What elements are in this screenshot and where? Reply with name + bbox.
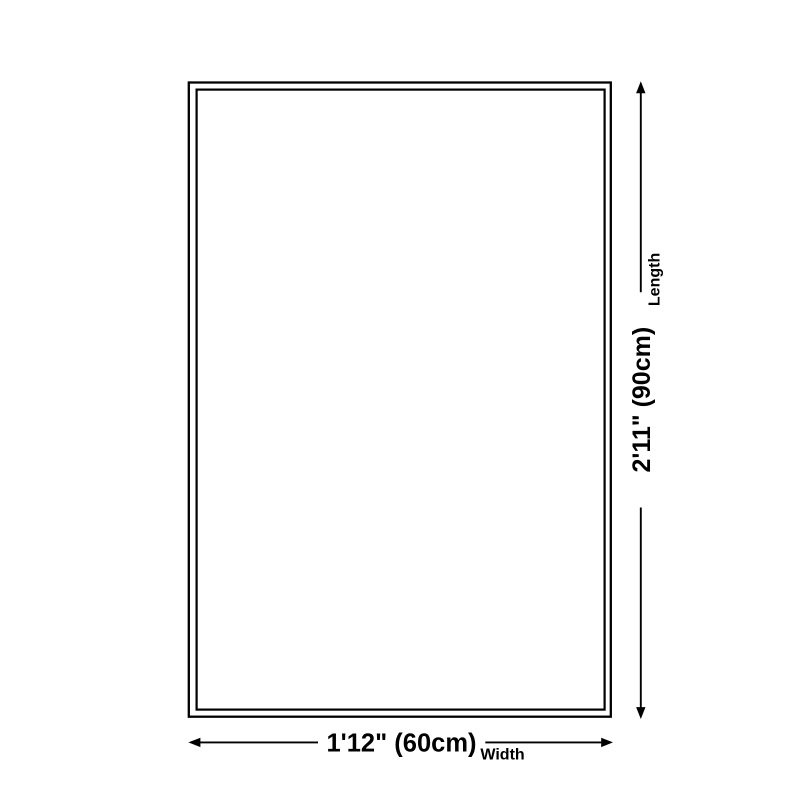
- svg-text:1'12" (60cm): 1'12" (60cm): [327, 729, 477, 757]
- svg-text:Width: Width: [480, 747, 524, 764]
- svg-text:2'11" (90cm): 2'11" (90cm): [628, 327, 656, 473]
- svg-text:Length: Length: [647, 253, 664, 306]
